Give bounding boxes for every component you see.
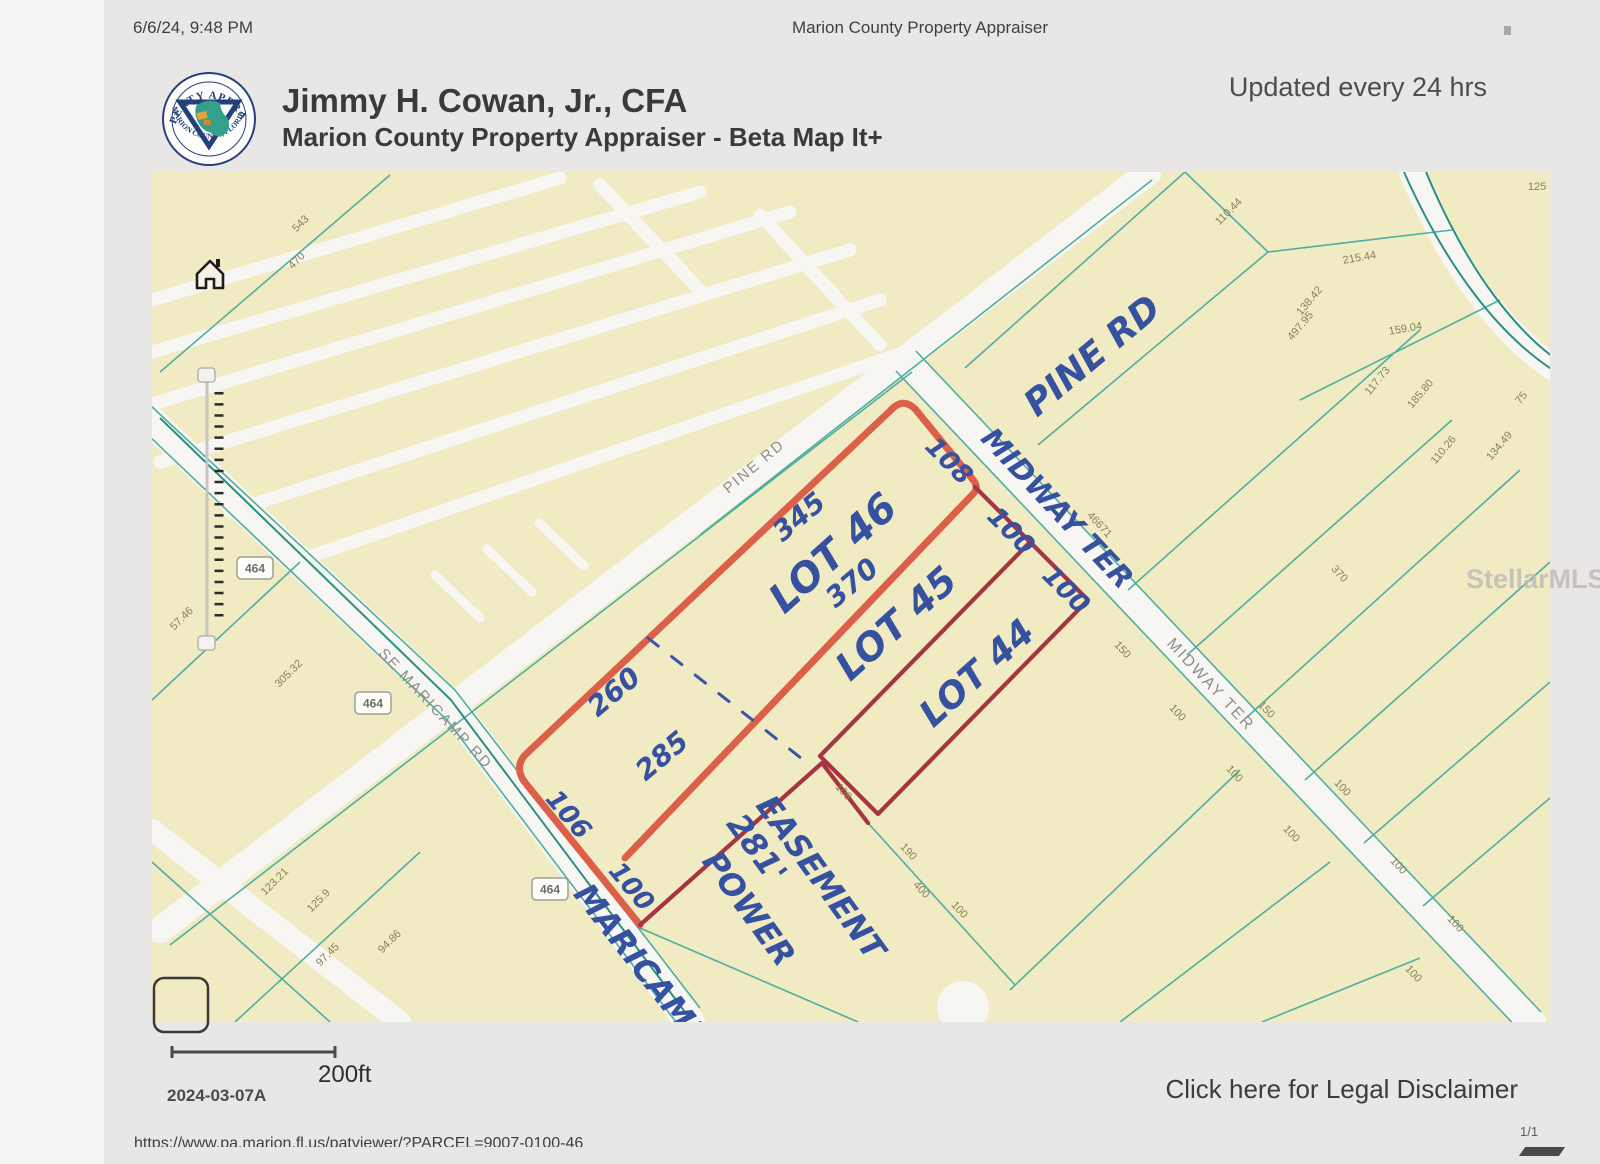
scale-bar: 200ft 2024-03-07A [167, 1046, 372, 1105]
svg-text:464: 464 [245, 562, 265, 576]
footer-url: https://www.pa.marion.fl.us/patviewer/?P… [134, 1135, 583, 1147]
scan-speck [1504, 26, 1511, 35]
cul-de-sac [937, 981, 989, 1033]
svg-text:464: 464 [363, 697, 383, 711]
zoom-out-button [198, 636, 215, 650]
map-date: 2024-03-07A [167, 1086, 266, 1105]
route-shield: 464 [355, 692, 391, 714]
svg-text:464: 464 [540, 883, 560, 897]
printed-map-page: 6/6/24, 9:48 PM Marion County Property A… [0, 0, 1600, 1164]
legal-disclaimer-link[interactable]: Click here for Legal Disclaimer [1100, 1074, 1518, 1105]
parcel-dimension: 125 [1528, 181, 1546, 193]
map-canvas[interactable]: PINE RDMIDWAY TERSE MARICAMP RD 54347057… [0, 0, 1600, 1164]
scale-label: 200ft [318, 1061, 372, 1088]
watermark: StellarMLS [1466, 564, 1600, 594]
zoom-in-button [198, 368, 215, 382]
page-number: 1/1 [1520, 1124, 1538, 1139]
route-shield: 464 [532, 878, 568, 900]
scan-artifact [1519, 1147, 1565, 1156]
route-shield: 464 [237, 557, 273, 579]
